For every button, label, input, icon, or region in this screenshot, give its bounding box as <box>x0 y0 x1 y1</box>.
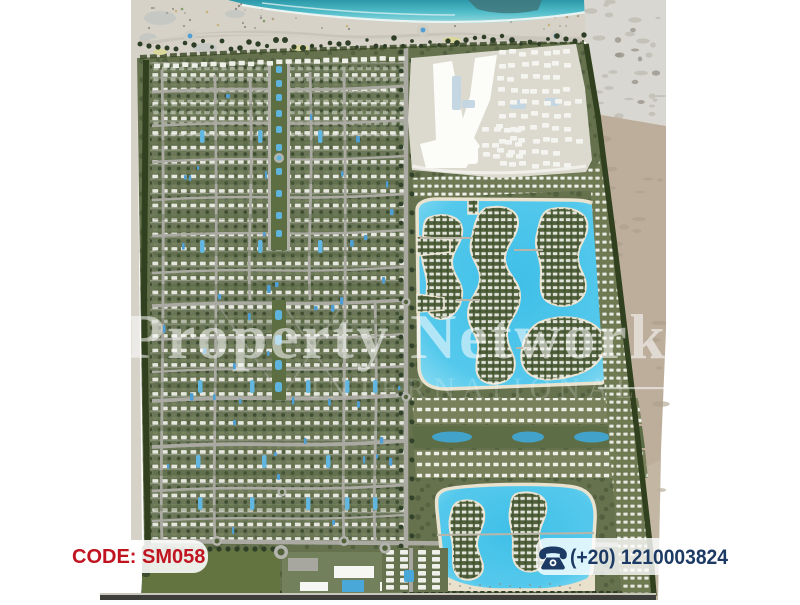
svg-text:CODE: SM058: CODE: SM058 <box>72 546 205 568</box>
svg-text:(+20) 1210003824: (+20) 1210003824 <box>570 546 728 569</box>
svg-text:INTERNATIONAL: INTERNATIONAL <box>310 372 641 405</box>
svg-text:Property Network: Property Network <box>125 301 665 372</box>
